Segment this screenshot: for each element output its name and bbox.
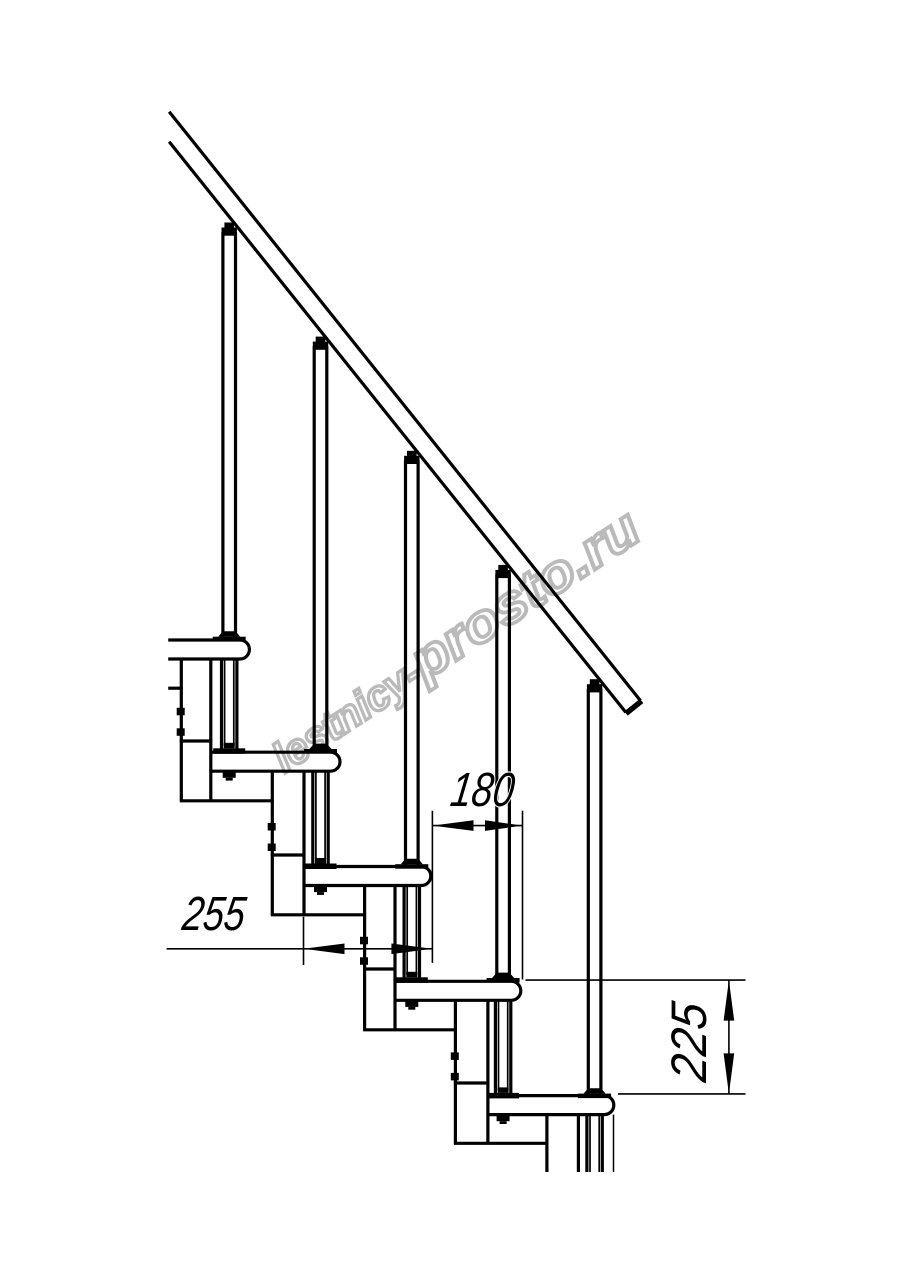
svg-text:255: 255 <box>179 887 249 941</box>
svg-text:225: 225 <box>661 998 717 1086</box>
svg-text:180: 180 <box>447 763 518 817</box>
